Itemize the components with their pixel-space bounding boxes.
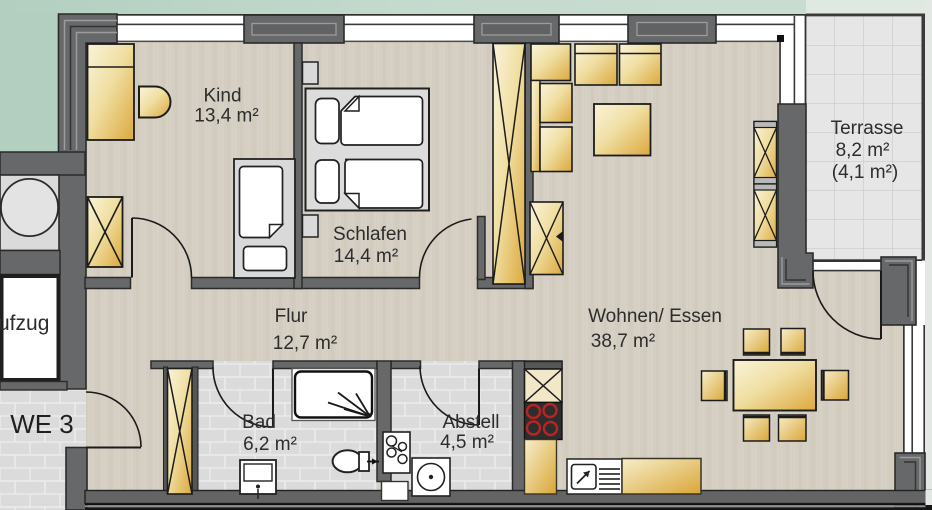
svg-text:6,2 m²: 6,2 m² <box>243 434 297 455</box>
svg-text:WE 3: WE 3 <box>10 409 74 439</box>
svg-text:13,4 m²: 13,4 m² <box>194 106 258 127</box>
svg-text:Bad: Bad <box>242 412 276 433</box>
svg-text:Schlafen: Schlafen <box>333 224 407 245</box>
svg-text:Aufzug: Aufzug <box>0 312 49 335</box>
svg-text:Terrasse: Terrasse <box>831 118 904 139</box>
svg-text:8,2 m²: 8,2 m² <box>836 140 890 161</box>
svg-text:Flur: Flur <box>275 306 308 327</box>
svg-text:14,4 m²: 14,4 m² <box>334 246 398 267</box>
svg-text:12,7 m²: 12,7 m² <box>273 333 337 354</box>
svg-text:Wohnen/ Essen: Wohnen/ Essen <box>588 306 722 327</box>
svg-text:Kind: Kind <box>203 86 241 107</box>
svg-text:(4,1 m²): (4,1 m²) <box>832 162 899 183</box>
svg-text:Abstell: Abstell <box>442 412 499 433</box>
svg-text:38,7 m²: 38,7 m² <box>591 331 655 352</box>
svg-text:4,5 m²: 4,5 m² <box>440 432 494 453</box>
